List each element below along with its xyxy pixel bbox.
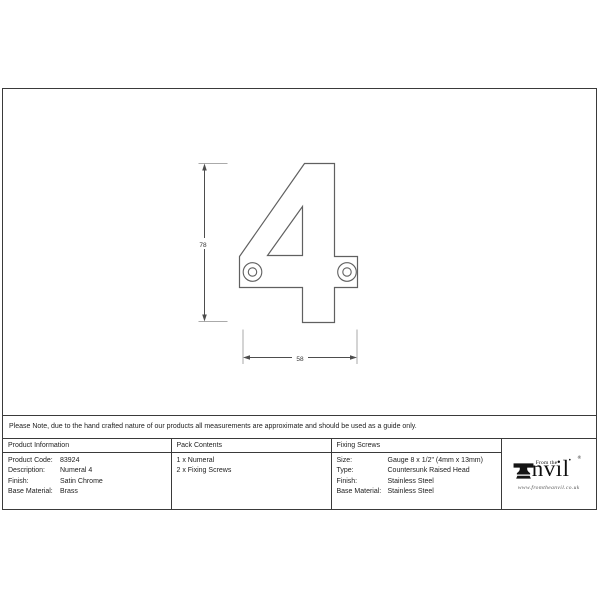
numeral-outline [240, 164, 358, 323]
row-type: Type: Countersunk Raised Head [337, 466, 496, 476]
spec-value: Stainless Steel [388, 487, 434, 497]
spec-value: Numeral 4 [60, 466, 92, 476]
pack-item: 1 x Numeral [177, 456, 326, 466]
logo-url: www.fromtheanvil.co.uk [512, 485, 586, 491]
header-product-information: Product Information [3, 439, 171, 453]
row-screw-base-material: Base Material: Stainless Steel [337, 487, 496, 497]
spec-label: Description: [8, 466, 60, 476]
anvil-logo: From the • ® nvil www.fromtheanvil.co.uk [512, 455, 586, 493]
height-dimension-label: 78 [199, 242, 207, 249]
row-finish: Finish: Satin Chrome [8, 477, 166, 487]
width-dimension: 58 [243, 352, 357, 363]
screw-hole-right [338, 263, 357, 282]
spec-label: Product Code: [8, 456, 60, 466]
header-pack-contents: Pack Contents [172, 439, 331, 453]
header-fixing-screws: Fixing Screws [332, 439, 501, 453]
spec-value: Countersunk Raised Head [388, 466, 470, 476]
spec-value: Satin Chrome [60, 477, 103, 487]
row-base-material: Base Material: Brass [8, 487, 166, 497]
spec-value: Stainless Steel [388, 477, 434, 487]
column-logo: From the • ® nvil www.fromtheanvil.co.uk [502, 439, 597, 510]
screw-hole-left [243, 263, 262, 282]
spec-label: Size: [337, 456, 388, 466]
spec-label: Finish: [337, 477, 388, 487]
spec-value: 83924 [60, 456, 79, 466]
spec-table: Product Information Product Code: 83924 … [3, 438, 596, 510]
column-fixing-screws: Fixing Screws Size: Gauge 8 x 1/2" (4mm … [332, 439, 502, 510]
column-product-information: Product Information Product Code: 83924 … [3, 439, 172, 510]
spec-value: Gauge 8 x 1/2" (4mm x 13mm) [388, 456, 483, 466]
note-bar: Please Note, due to the hand crafted nat… [3, 415, 596, 438]
spec-sheet-page: 78 58 Please Note, due to the hand craft… [0, 0, 600, 600]
row-size: Size: Gauge 8 x 1/2" (4mm x 13mm) [337, 456, 496, 466]
spec-label: Base Material: [337, 487, 388, 497]
registered-mark: ® [578, 455, 581, 460]
height-dimension: 78 [196, 164, 211, 322]
width-dimension-label: 58 [296, 356, 304, 363]
row-screw-finish: Finish: Stainless Steel [337, 477, 496, 487]
note-text: Please Note, due to the hand crafted nat… [9, 423, 417, 430]
column-pack-contents: Pack Contents 1 x Numeral 2 x Fixing Scr… [172, 439, 332, 510]
row-description: Description: Numeral 4 [8, 466, 166, 476]
spec-label: Type: [337, 466, 388, 476]
logo-brand-text: nvil [532, 457, 570, 481]
row-product-code: Product Code: 83924 [8, 456, 166, 466]
spec-label: Base Material: [8, 487, 60, 497]
pack-item: 2 x Fixing Screws [177, 466, 326, 476]
spec-sheet-frame: 78 58 Please Note, due to the hand craft… [2, 88, 597, 510]
spec-label: Finish: [8, 477, 60, 487]
technical-drawing: 78 58 [3, 89, 594, 415]
spec-value: Brass [60, 487, 78, 497]
